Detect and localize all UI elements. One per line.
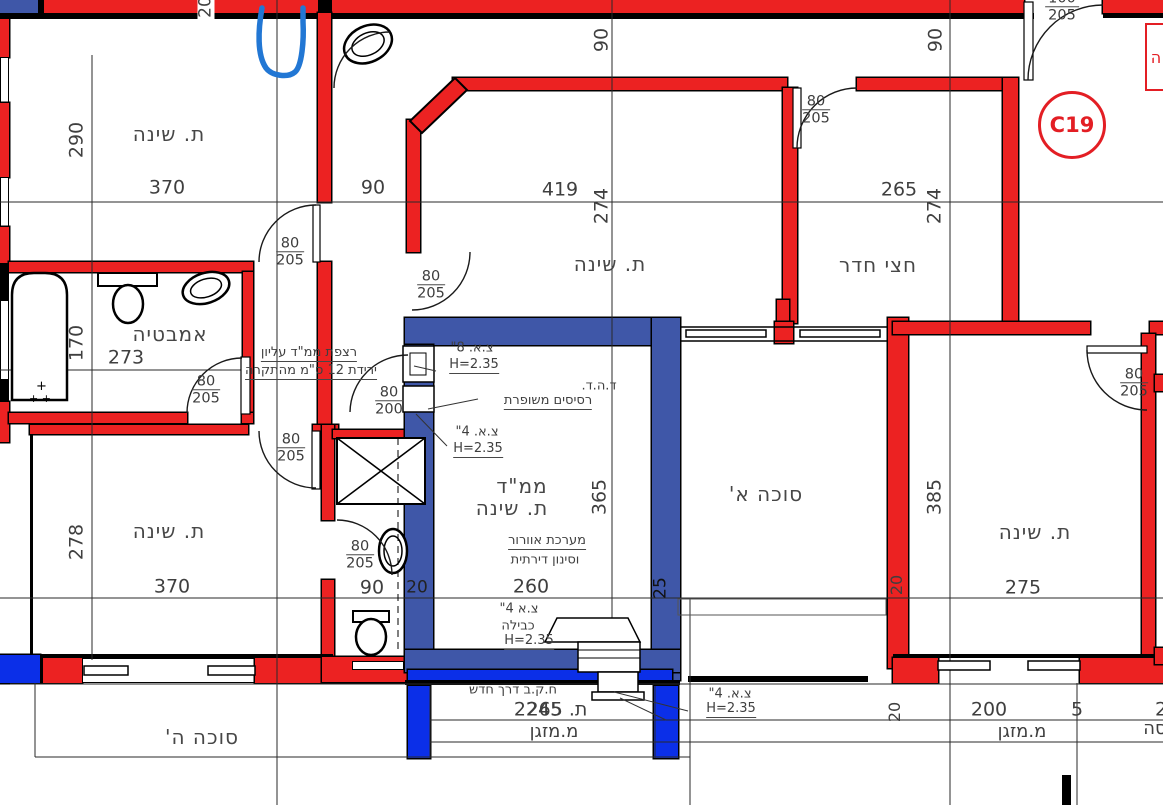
vent-fixture bbox=[403, 346, 434, 412]
toilet-icon bbox=[98, 273, 157, 323]
room-label-ac-right: מ.מזגן bbox=[998, 723, 1047, 741]
note-pipe4-upper: צ.א. 4" bbox=[455, 426, 498, 439]
dim-200-br: 200 bbox=[971, 701, 1007, 720]
door-height: 205 bbox=[276, 253, 304, 269]
door-size-mid-left: 80 205 bbox=[417, 268, 445, 301]
door-width: 80 bbox=[276, 235, 304, 252]
note-blast-door-1: ד.ה.ד. bbox=[581, 380, 616, 393]
door-size-bath: 80 205 bbox=[192, 373, 220, 406]
room-label-sukkah-h: סוכה ה' bbox=[165, 727, 239, 747]
note-cable-1: צ.א 4" bbox=[500, 603, 539, 616]
door-size-tl: 80 205 bbox=[276, 235, 304, 268]
wall-chamfer bbox=[410, 78, 467, 133]
note-pipe4-lower: צ.א. 4" bbox=[708, 688, 751, 701]
note-mamad-floor-1: רצפת ממ"ד עליון bbox=[261, 346, 357, 362]
note-pipe8-h: H=2.35 bbox=[449, 358, 499, 374]
door-height: 205 bbox=[346, 556, 374, 572]
door-height: 205 bbox=[1120, 384, 1148, 400]
note-vent-2: וסינון דירתית bbox=[511, 554, 580, 567]
marker-text: C19 bbox=[1050, 113, 1095, 137]
door-size-wc: 80 205 bbox=[344, 538, 376, 571]
note-cable-2: כבילה bbox=[501, 620, 534, 633]
dim-overlap-b: ת. 265 bbox=[527, 701, 588, 720]
floor-plan: + + + bbox=[0, 0, 1163, 805]
toilet-icon bbox=[353, 611, 389, 655]
door-width: 80 bbox=[192, 373, 220, 390]
dim-370-tl: 370 bbox=[149, 179, 185, 198]
dim-90-mid: 90 bbox=[593, 28, 612, 52]
note-vent-1: מערכת אוורור bbox=[508, 534, 586, 550]
dim-419: 419 bbox=[542, 181, 578, 200]
dim-5-br: 5 bbox=[1071, 701, 1083, 720]
legend-text-partial: ה bbox=[1151, 48, 1161, 67]
room-label-bedroom-right: ת. שינה bbox=[999, 522, 1072, 542]
sink-icon bbox=[379, 529, 407, 573]
dim-20-wc: 20 bbox=[406, 580, 428, 597]
door-size-entry: 100 205 bbox=[1045, 0, 1079, 24]
svg-text:+ +: + + bbox=[29, 392, 51, 405]
door-size-mamad: 80 200 bbox=[375, 384, 403, 417]
door-height: 200 bbox=[375, 402, 403, 418]
note-blast-door-2: רסיסים משופרת bbox=[504, 394, 592, 410]
sink-icon bbox=[179, 266, 234, 309]
dim-274-r: 274 bbox=[926, 188, 945, 224]
room-label-bedroom-tl: ת. שינה bbox=[133, 124, 206, 144]
window bbox=[680, 327, 888, 341]
dim-20-rwall: 20 bbox=[889, 575, 905, 595]
dim-170: 170 bbox=[68, 325, 87, 361]
door-height: 205 bbox=[1048, 8, 1076, 24]
bathtub-icon: + + + bbox=[12, 273, 67, 405]
door-width: 80 bbox=[277, 431, 305, 448]
dim-25-mamad: 25 bbox=[653, 577, 670, 599]
sink-icon bbox=[338, 17, 399, 71]
blue-scribble-annotation bbox=[259, 8, 303, 75]
dim-290: 290 bbox=[68, 122, 87, 158]
dim-2-partial: 2 bbox=[1155, 701, 1163, 720]
room-label-bedroom-bl: ת. שינה bbox=[133, 521, 206, 541]
dim-90-r: 90 bbox=[927, 28, 946, 52]
room-label-bathroom: אמבטיה bbox=[132, 324, 207, 344]
room-label-sukkah-a: סוכה א' bbox=[729, 484, 803, 504]
door-size-bl: 80 205 bbox=[277, 431, 305, 464]
door-height: 205 bbox=[277, 449, 305, 465]
door-height: 205 bbox=[802, 111, 830, 127]
note-window: ח.ק.ב דרך חדש bbox=[469, 684, 557, 697]
column-marker-c19: C19 bbox=[1038, 91, 1106, 159]
legend-box-partial: ה bbox=[1145, 23, 1163, 91]
dim-274-mid: 274 bbox=[593, 188, 612, 224]
dim-90-tl: 90 bbox=[361, 179, 385, 198]
dim-370-bl: 370 bbox=[154, 578, 190, 597]
note-pipe8: צ.א. 8" bbox=[450, 342, 493, 355]
note-pipe4-upper-h: H=2.35 bbox=[453, 442, 503, 458]
door-width: 100 bbox=[1045, 0, 1079, 8]
dim-275: 275 bbox=[1005, 579, 1041, 598]
dim-385: 385 bbox=[926, 479, 945, 515]
door-arc bbox=[187, 5, 1147, 575]
dim-365: 365 bbox=[591, 479, 610, 515]
door-width: 80 bbox=[375, 384, 403, 401]
door-size-right: 80 205 bbox=[1120, 366, 1148, 399]
room-label-ac-left: מ.מזגן bbox=[530, 723, 579, 741]
room-label-half-room: חצי חדר bbox=[839, 255, 917, 275]
room-label-mamad: ממ"ד bbox=[496, 476, 547, 496]
dim-260: 260 bbox=[513, 578, 549, 597]
door-width: 80 bbox=[802, 93, 830, 110]
note-pipe4-lower-h: H=2.35 bbox=[706, 702, 756, 718]
door-width: 80 bbox=[1120, 366, 1148, 383]
door-width: 80 bbox=[346, 538, 374, 555]
note-mamad-floor-2: ירידת 12 ס"מ מהתקרה bbox=[245, 364, 377, 380]
door-height: 205 bbox=[417, 286, 445, 302]
dim-20-br: 20 bbox=[887, 702, 903, 722]
room-label-bedroom-mid: ת. שינה bbox=[574, 254, 647, 274]
note-cable-h: H=2.35 bbox=[504, 634, 554, 650]
dim-90-wc: 90 bbox=[360, 579, 384, 598]
door-size-mid-top: 80 205 bbox=[802, 93, 830, 126]
dim-278: 278 bbox=[68, 524, 87, 560]
dim-20-top: 20 bbox=[198, 0, 215, 20]
room-label-mamad-2: ת. שינה bbox=[476, 498, 549, 518]
door-height: 205 bbox=[192, 391, 220, 407]
ledge bbox=[678, 599, 886, 615]
dim-273: 273 bbox=[108, 349, 144, 368]
door-width: 80 bbox=[417, 268, 445, 285]
dim-265: 265 bbox=[881, 181, 917, 200]
blast-window-fixture bbox=[545, 618, 644, 700]
label-partial-right: סה bbox=[1143, 720, 1163, 738]
